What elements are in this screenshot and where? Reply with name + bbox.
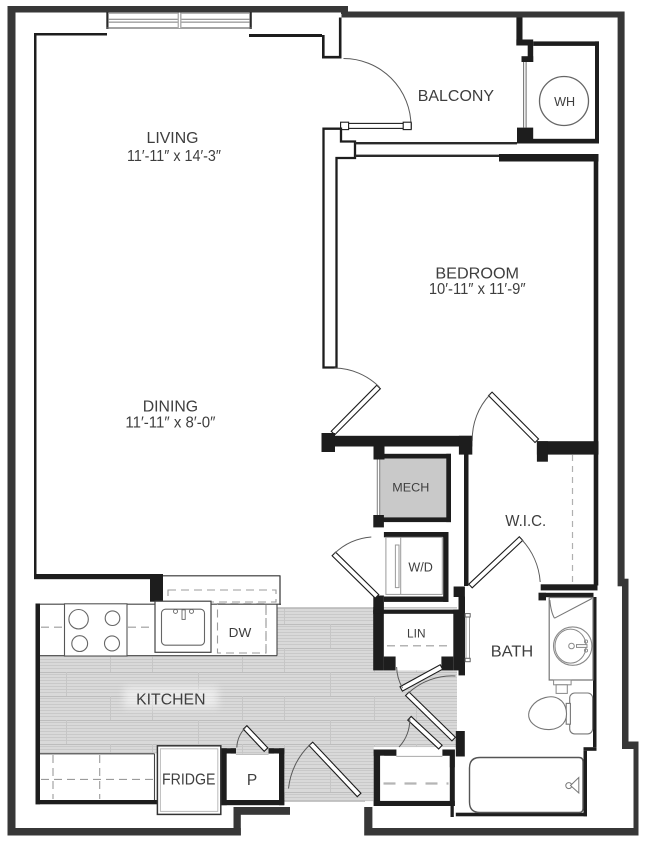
svg-text:P: P bbox=[247, 772, 257, 789]
svg-text:DINING: DINING bbox=[143, 399, 198, 416]
svg-text:11′-11″ x 8′-0″: 11′-11″ x 8′-0″ bbox=[125, 415, 215, 432]
svg-text:MECH: MECH bbox=[392, 482, 429, 494]
svg-text:KITCHEN: KITCHEN bbox=[136, 692, 205, 709]
svg-text:BALCONY: BALCONY bbox=[418, 88, 495, 105]
svg-text:LIN: LIN bbox=[407, 626, 426, 640]
svg-text:DW: DW bbox=[229, 625, 252, 640]
svg-text:W.I.C.: W.I.C. bbox=[505, 513, 546, 530]
svg-text:WH: WH bbox=[554, 95, 575, 109]
svg-text:FRIDGE: FRIDGE bbox=[162, 772, 216, 789]
svg-text:10′-11″ x 11′-9″: 10′-11″ x 11′-9″ bbox=[429, 281, 526, 298]
svg-text:LIVING: LIVING bbox=[147, 130, 199, 147]
svg-text:BEDROOM: BEDROOM bbox=[435, 266, 519, 283]
svg-text:11′-11″ x 14′-3″: 11′-11″ x 14′-3″ bbox=[127, 148, 221, 165]
svg-text:W/D: W/D bbox=[408, 560, 433, 575]
svg-text:BATH: BATH bbox=[491, 643, 533, 660]
